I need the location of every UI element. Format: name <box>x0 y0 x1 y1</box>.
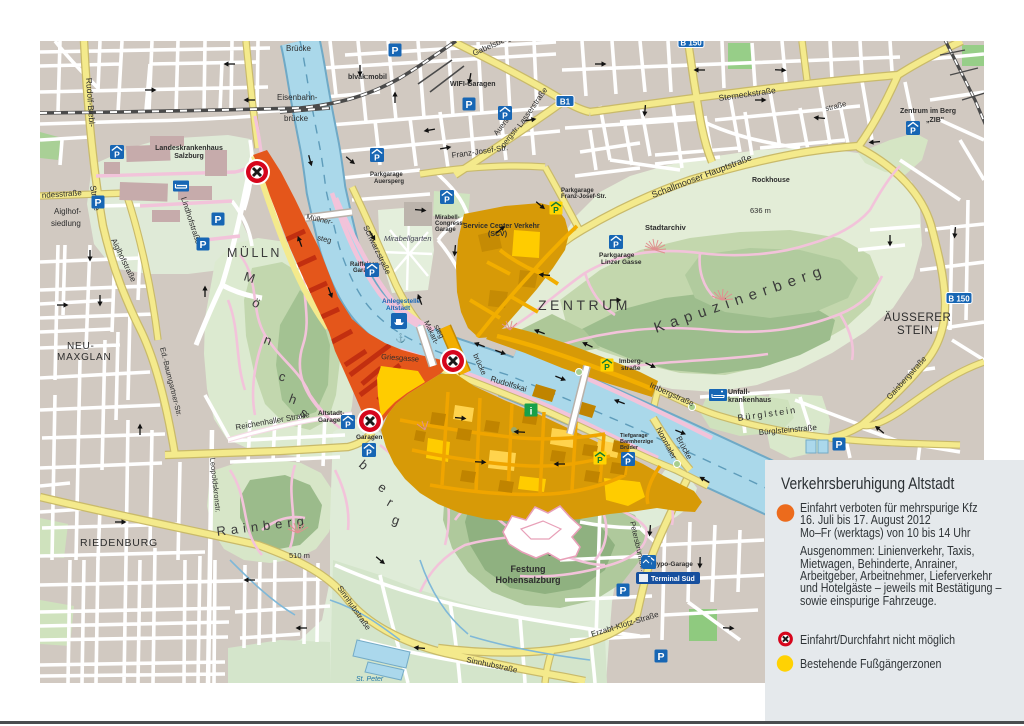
svg-text:Imberg-: Imberg- <box>619 358 643 365</box>
svg-text:Garagen: Garagen <box>318 417 344 424</box>
svg-text:⚓: ⚓ <box>395 332 406 343</box>
svg-text:Salzburg: Salzburg <box>174 153 204 160</box>
svg-text:Aiglhof-: Aiglhof- <box>54 207 81 216</box>
svg-text:Parkgarage: Parkgarage <box>370 172 403 178</box>
svg-text:636 m: 636 m <box>750 206 771 215</box>
svg-text:MÜLLN: MÜLLN <box>227 246 282 260</box>
svg-text:Auersperg: Auersperg <box>374 179 404 185</box>
svg-text:Hypo-Garage: Hypo-Garage <box>652 561 693 568</box>
svg-text:Parkgarage: Parkgarage <box>599 252 635 259</box>
svg-text:Festung: Festung <box>511 564 546 574</box>
svg-text:Landeskrankenhaus: Landeskrankenhaus <box>155 145 223 152</box>
svg-text:Hohensalzburg: Hohensalzburg <box>495 575 560 585</box>
svg-text:straße: straße <box>621 365 641 372</box>
svg-text:Unfall-: Unfall- <box>728 389 750 396</box>
svg-text:Terminal Süd: Terminal Süd <box>651 576 695 583</box>
svg-text:Brücke: Brücke <box>286 44 311 53</box>
svg-text:Rockhouse: Rockhouse <box>752 177 790 184</box>
svg-text:B1: B1 <box>560 98 571 107</box>
svg-text:NEU-: NEU- <box>67 341 95 352</box>
svg-text:siedlung: siedlung <box>51 219 81 228</box>
svg-text:B 150: B 150 <box>680 39 702 48</box>
svg-text:Anlegestelle: Anlegestelle <box>382 298 421 305</box>
svg-text:brücke: brücke <box>284 114 309 123</box>
svg-text:STEIN: STEIN <box>897 325 933 337</box>
svg-text:Garagen: Garagen <box>356 434 382 441</box>
svg-text:Stadtarchiv: Stadtarchiv <box>645 223 687 232</box>
svg-text:St. Peter: St. Peter <box>356 676 384 683</box>
svg-text:„ZIB": „ZIB" <box>926 117 944 124</box>
svg-text:B 150: B 150 <box>948 295 970 304</box>
svg-text:ÄUSSERER: ÄUSSERER <box>884 312 951 324</box>
svg-text:Altstadt: Altstadt <box>386 305 411 312</box>
svg-text:MAXGLAN: MAXGLAN <box>57 352 112 363</box>
svg-text:blvak:mobil: blvak:mobil <box>348 74 387 81</box>
svg-text:i: i <box>530 407 533 418</box>
svg-text:Linzer Gasse: Linzer Gasse <box>601 259 642 266</box>
svg-text:Mirabellgarten: Mirabellgarten <box>384 234 432 243</box>
svg-text:WIFI-Garagen: WIFI-Garagen <box>450 81 496 88</box>
svg-text:krankenhaus: krankenhaus <box>728 397 771 404</box>
svg-text:510 m: 510 m <box>289 551 310 560</box>
svg-text:Zentrum im Berg: Zentrum im Berg <box>900 108 956 115</box>
svg-text:Eisenbahn-: Eisenbahn- <box>277 93 318 102</box>
svg-text:Garage: Garage <box>435 227 456 233</box>
svg-text:Brüder: Brüder <box>620 445 639 451</box>
svg-text:RIEDENBURG: RIEDENBURG <box>80 537 158 549</box>
svg-text:Franz-Josef-Str.: Franz-Josef-Str. <box>561 194 607 200</box>
svg-text:Altstadt-: Altstadt- <box>318 410 344 417</box>
